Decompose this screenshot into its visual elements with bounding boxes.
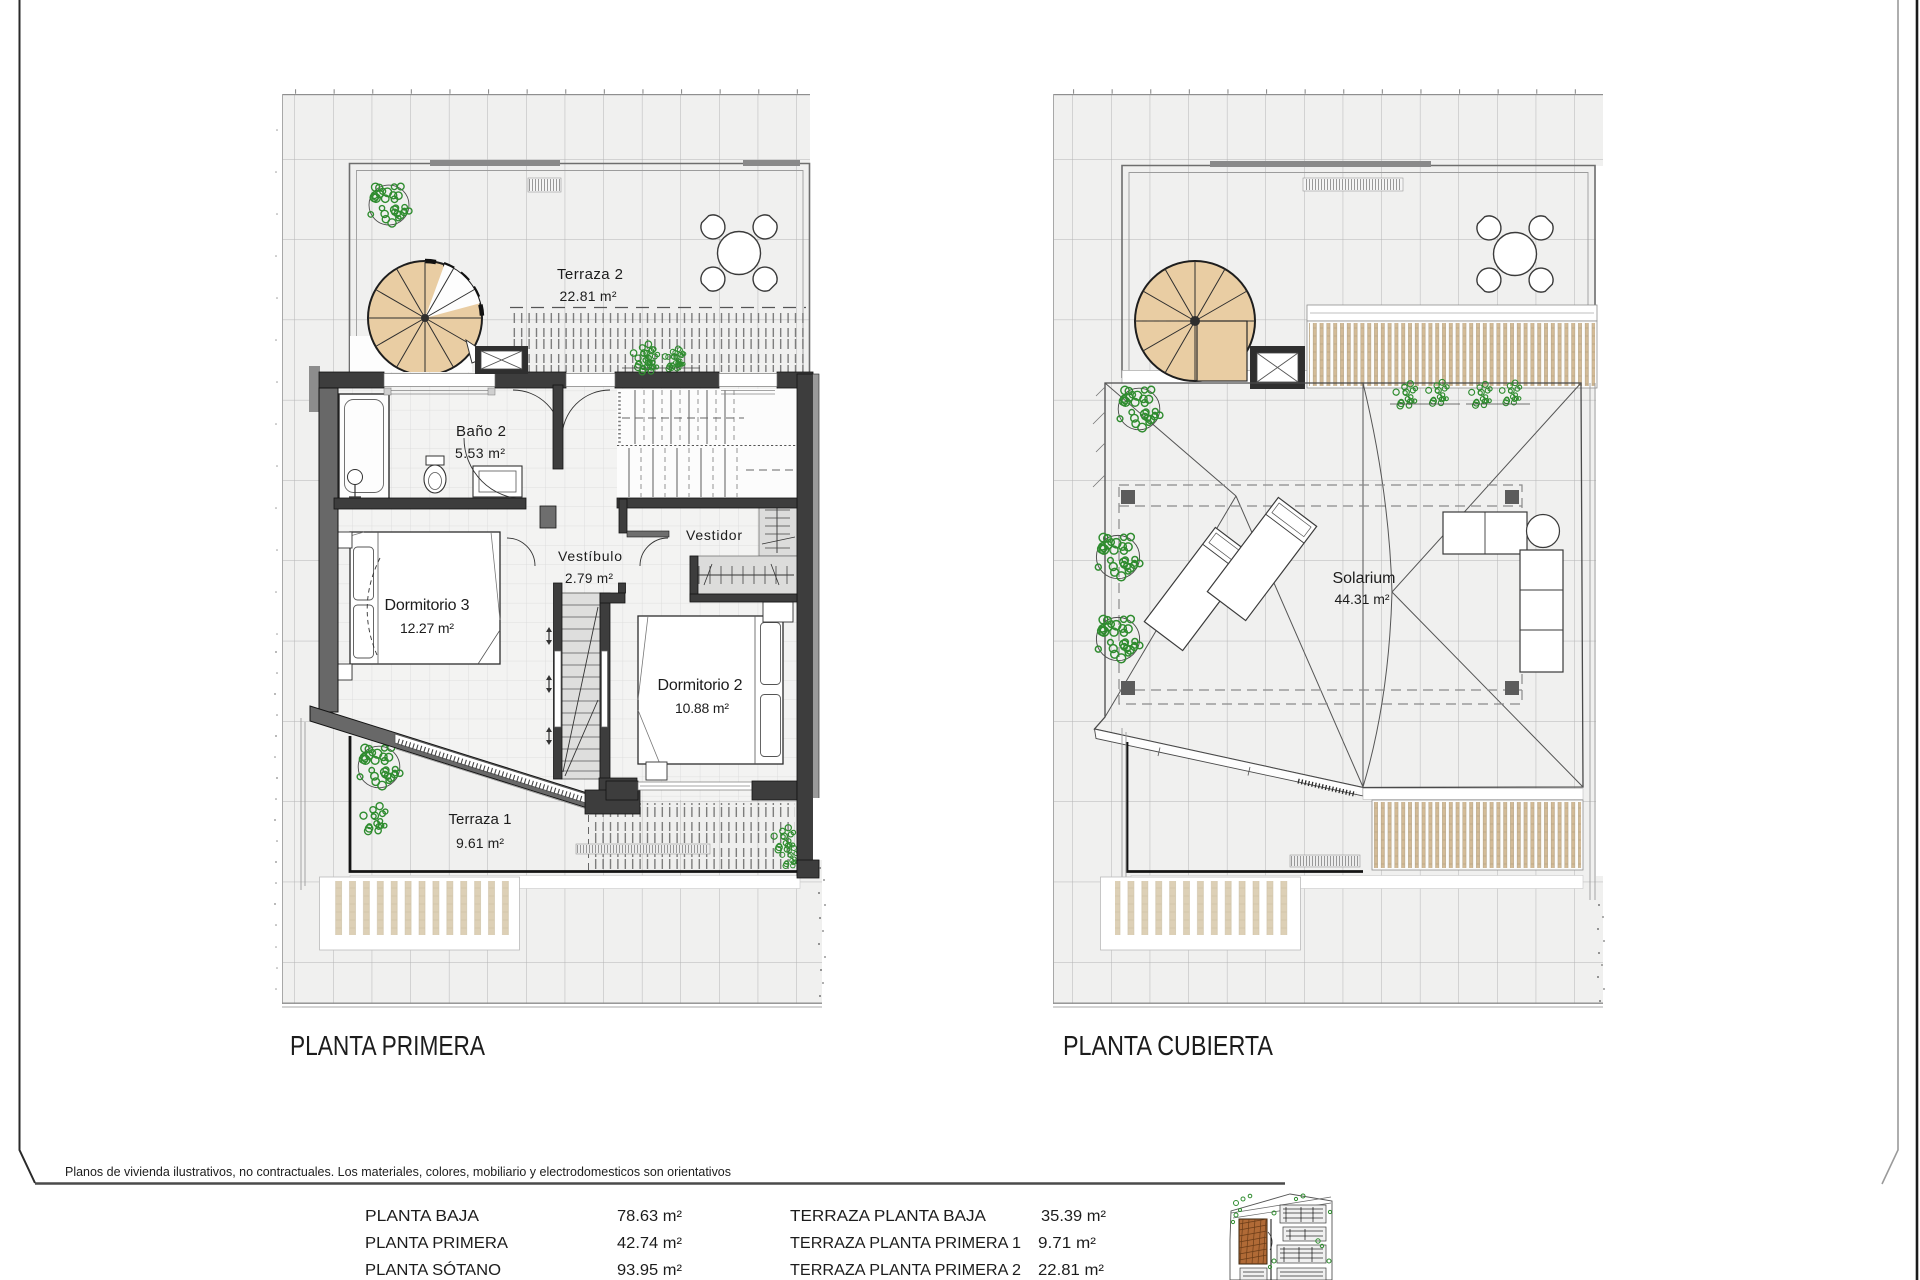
svg-text:TERRAZA PLANTA BAJA: TERRAZA PLANTA BAJA: [790, 1208, 986, 1225]
svg-text:22.81 m²: 22.81 m²: [1038, 1262, 1104, 1279]
svg-text:2.79 m²: 2.79 m²: [565, 571, 614, 586]
svg-text:Dormitorio 2: Dormitorio 2: [658, 677, 743, 694]
svg-text:44.31 m²: 44.31 m²: [1335, 591, 1390, 607]
svg-text:Terraza 2: Terraza 2: [557, 266, 623, 283]
svg-text:5.53 m²: 5.53 m²: [455, 445, 505, 461]
svg-text:78.63 m²: 78.63 m²: [617, 1208, 682, 1225]
svg-text:9.61 m²: 9.61 m²: [456, 835, 504, 851]
svg-text:TERRAZA PLANTA PRIMERA 1: TERRAZA PLANTA PRIMERA 1: [790, 1235, 1021, 1252]
svg-text:TERRAZA PLANTA PRIMERA 2: TERRAZA PLANTA PRIMERA 2: [790, 1262, 1021, 1279]
svg-text:Solarium: Solarium: [1333, 570, 1396, 587]
svg-text:PLANTA BAJA: PLANTA BAJA: [365, 1208, 479, 1225]
svg-text:Baño 2: Baño 2: [456, 423, 506, 440]
svg-text:Vestidor: Vestidor: [686, 527, 742, 543]
svg-text:PLANTA PRIMERA: PLANTA PRIMERA: [365, 1235, 508, 1252]
svg-text:22.81 m²: 22.81 m²: [560, 288, 617, 304]
svg-text:10.88 m²: 10.88 m²: [675, 700, 729, 716]
svg-text:Vestíbulo: Vestíbulo: [558, 548, 622, 564]
svg-text:PLANTA SÓTANO: PLANTA SÓTANO: [365, 1260, 501, 1279]
svg-text:12.27 m²: 12.27 m²: [400, 620, 454, 636]
svg-text:42.74 m²: 42.74 m²: [617, 1235, 682, 1252]
svg-text:93.95 m²: 93.95 m²: [617, 1262, 682, 1279]
svg-text:Terraza 1: Terraza 1: [449, 811, 512, 828]
svg-text:PLANTA CUBIERTA: PLANTA CUBIERTA: [1063, 1030, 1273, 1061]
svg-text:PLANTA PRIMERA: PLANTA PRIMERA: [290, 1030, 485, 1061]
svg-text:9.71 m²: 9.71 m²: [1038, 1235, 1096, 1252]
svg-text:35.39 m²: 35.39 m²: [1041, 1208, 1106, 1225]
svg-text:Dormitorio 3: Dormitorio 3: [385, 597, 470, 614]
svg-text:Planos de vivienda ilustrativo: Planos de vivienda ilustrativos, no cont…: [65, 1164, 731, 1179]
